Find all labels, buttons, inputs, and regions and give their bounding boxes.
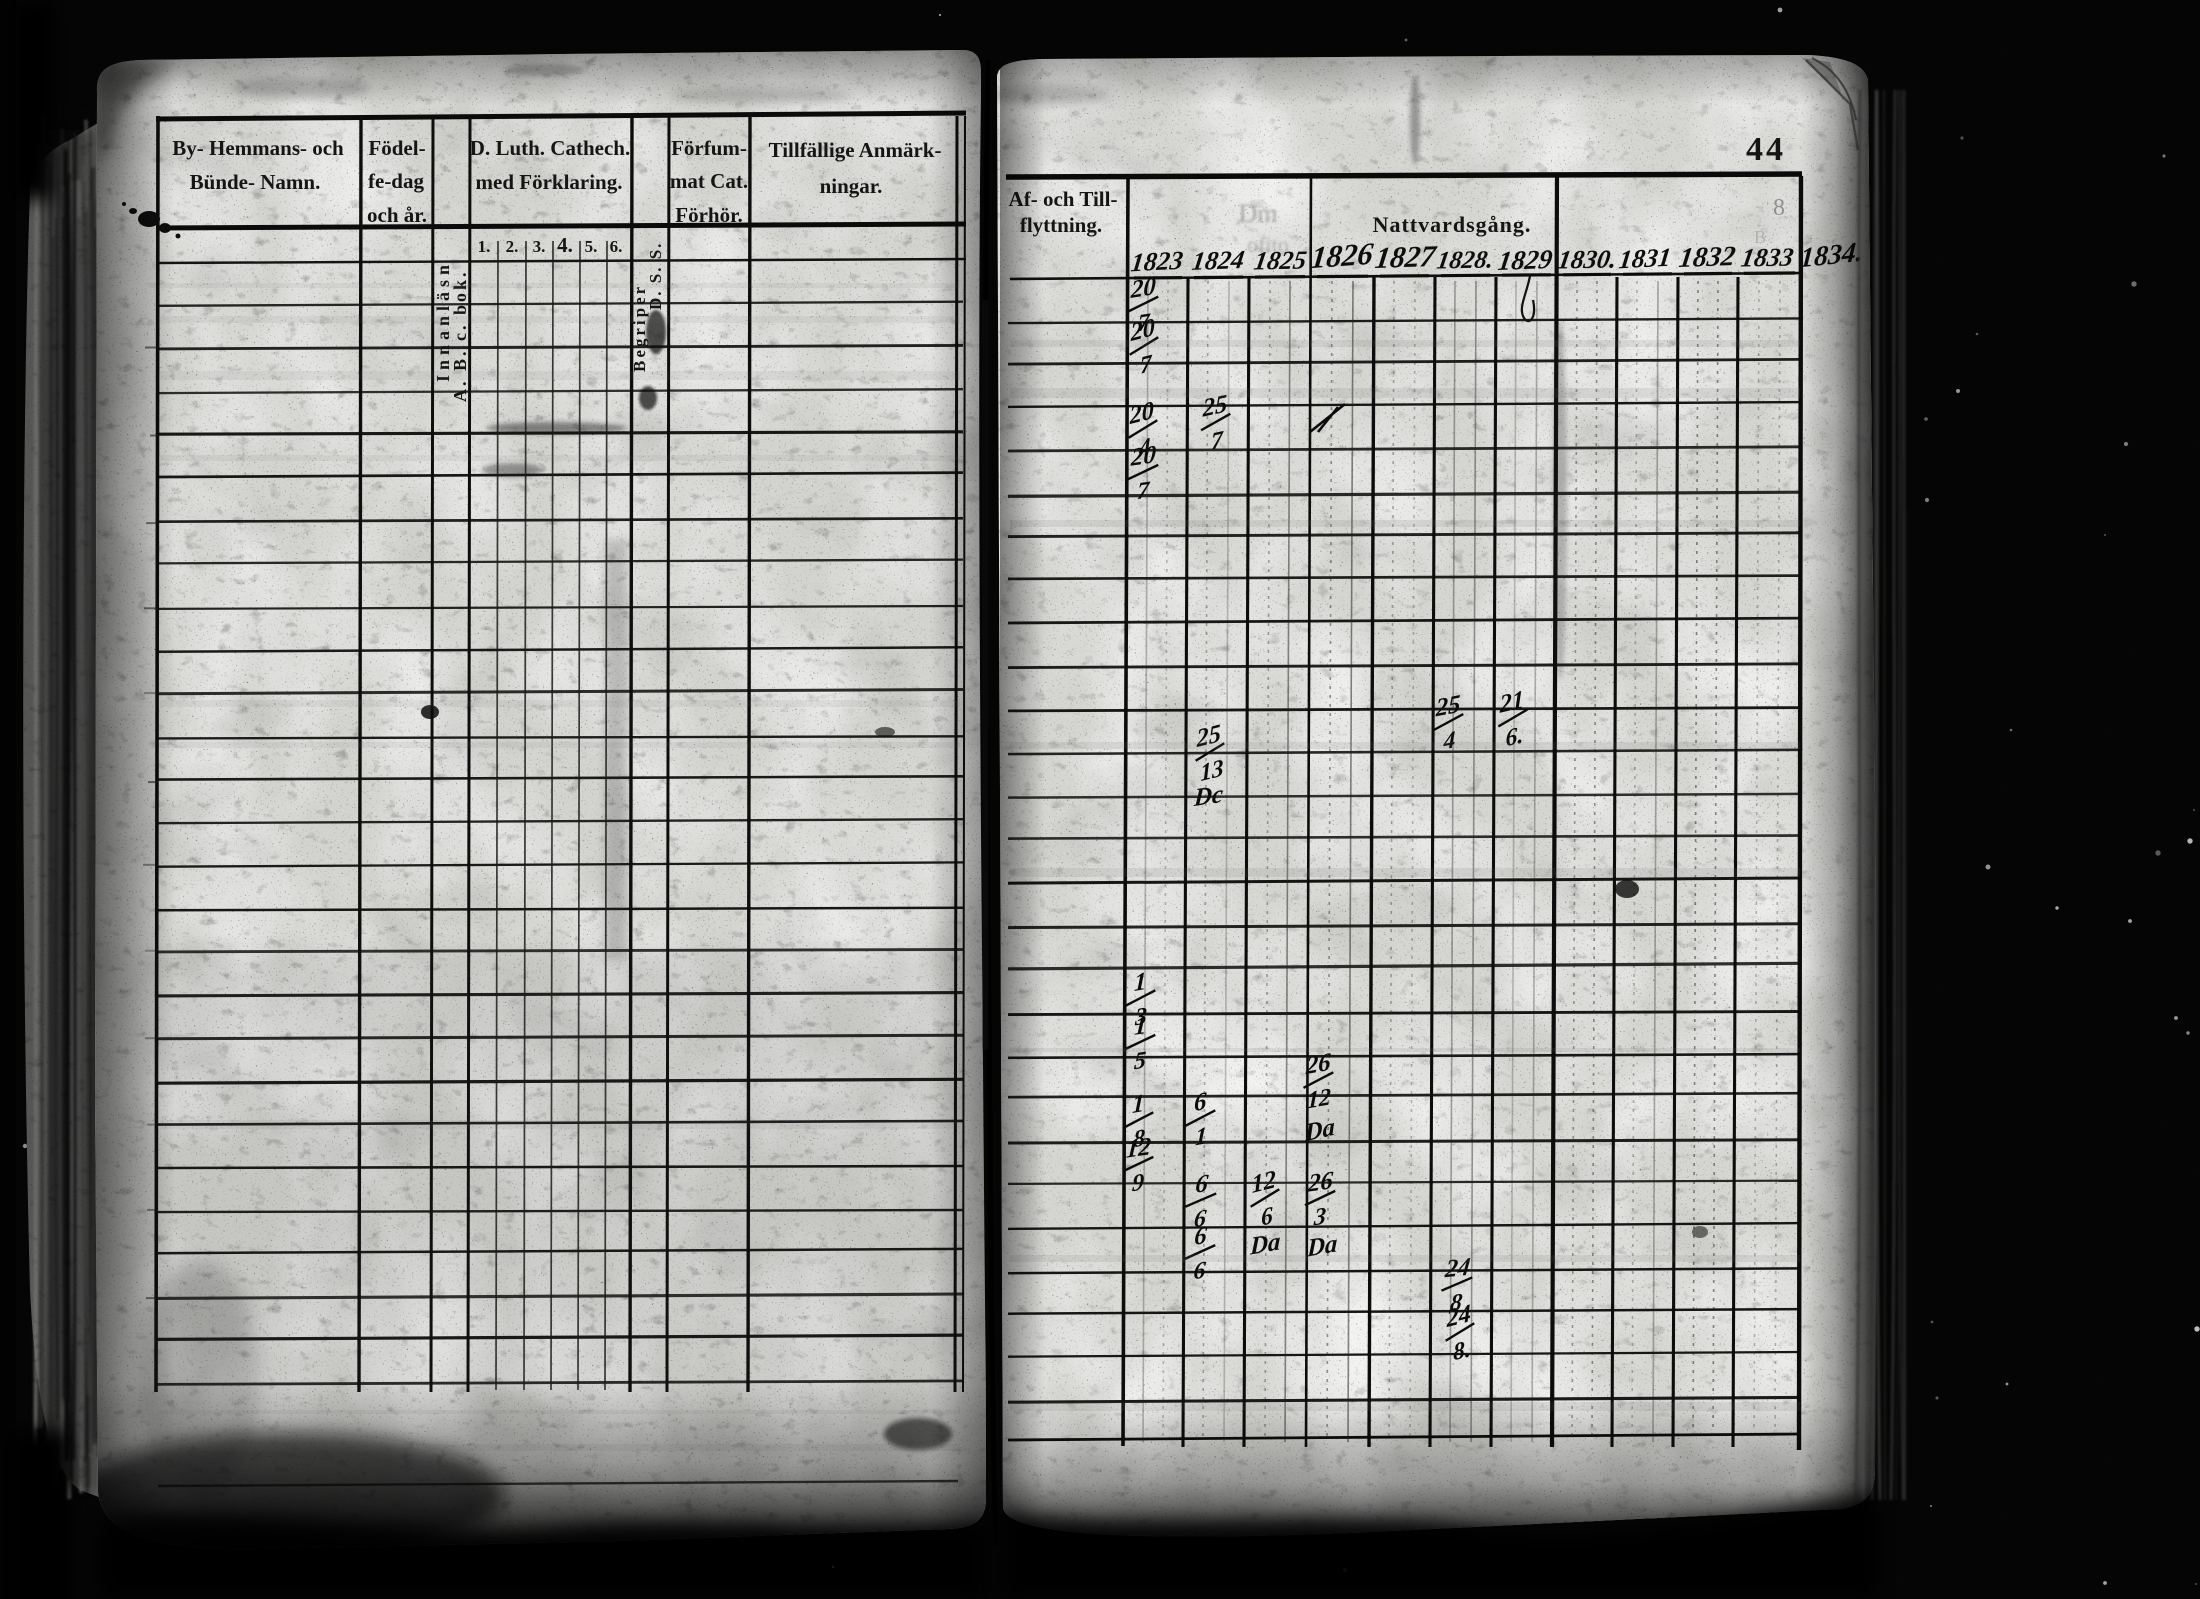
svg-text:12: 12 (1307, 1083, 1332, 1114)
svg-text:1829: 1829 (1496, 244, 1555, 276)
svg-text:Nattvardsgång.: Nattvardsgång. (1373, 212, 1532, 237)
svg-text:1: 1 (1195, 1122, 1208, 1151)
svg-text:Förfum-: Förfum- (671, 136, 747, 160)
svg-text:1827: 1827 (1373, 239, 1440, 275)
svg-text:6: 6 (1261, 1201, 1274, 1231)
svg-text:6.: 6. (610, 237, 623, 256)
svg-text:1828.: 1828. (1435, 247, 1495, 275)
svg-text:1: 1 (1132, 1089, 1145, 1119)
svg-text:1830.: 1830. (1556, 245, 1619, 275)
svg-text:6: 6 (1194, 1087, 1208, 1118)
svg-text:D. S. S.: D. S. S. (646, 242, 665, 310)
svg-text:4: 4 (1442, 726, 1455, 756)
svg-text:3.: 3. (533, 237, 546, 256)
svg-text:1824: 1824 (1190, 245, 1246, 276)
svg-text:1823: 1823 (1129, 246, 1184, 278)
svg-text:5.: 5. (585, 237, 598, 256)
svg-text:Dc: Dc (1192, 780, 1224, 812)
svg-text:mat Cat.: mat Cat. (670, 169, 748, 193)
svg-text:med Förklaring.: med Förklaring. (476, 170, 623, 194)
svg-text:1826: 1826 (1309, 236, 1375, 275)
svg-text:ningar.: ningar. (820, 174, 883, 198)
svg-text:Födel-: Födel- (368, 136, 425, 160)
svg-text:2.: 2. (506, 237, 519, 256)
svg-text:9: 9 (1131, 1168, 1145, 1197)
svg-text:3: 3 (1312, 1202, 1327, 1231)
svg-text:1: 1 (1133, 1011, 1147, 1041)
svg-text:A. B. c. bok.: A. B. c. bok. (450, 269, 470, 402)
svg-text:7: 7 (1211, 426, 1224, 456)
svg-text:Förhör.: Förhör. (675, 203, 742, 227)
svg-text:Dm: Dm (1239, 199, 1278, 228)
svg-text:1832: 1832 (1677, 241, 1737, 274)
svg-text:4.: 4. (557, 233, 573, 257)
svg-text:D. Luth. Cathech.: D. Luth. Cathech. (470, 136, 630, 160)
svg-text:1.: 1. (478, 237, 491, 256)
svg-text:1831: 1831 (1617, 243, 1672, 275)
svg-text:Tillfällige Anmärk-: Tillfällige Anmärk- (769, 138, 942, 162)
svg-text:och år.: och år. (367, 203, 427, 227)
svg-text:1825: 1825 (1252, 246, 1309, 276)
svg-text:1: 1 (1134, 967, 1147, 997)
svg-text:fe-dag: fe-dag (368, 169, 424, 193)
svg-text:7: 7 (1140, 349, 1153, 379)
